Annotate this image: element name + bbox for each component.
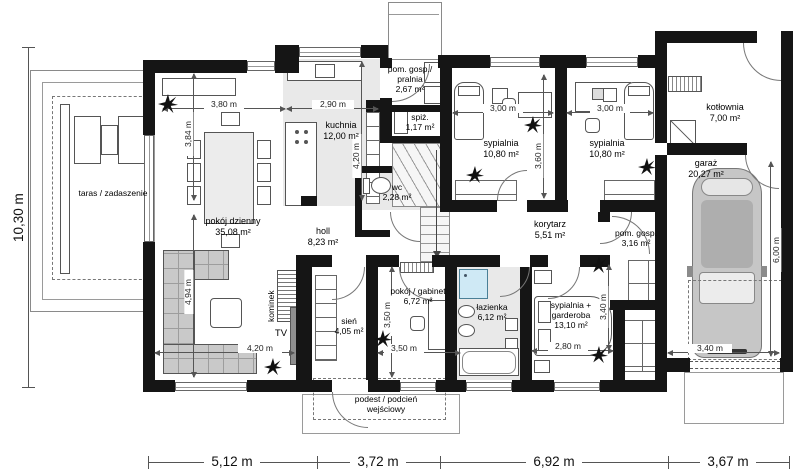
room-label-bathroom: łazienka6,12 m² [464, 302, 520, 322]
terrace-chair [118, 116, 145, 164]
toilet-tank [363, 178, 370, 194]
window [175, 382, 247, 391]
garage-door [690, 368, 780, 369]
desk [518, 92, 552, 118]
wall [780, 358, 793, 372]
wall [457, 255, 500, 267]
dim-tick [148, 456, 149, 469]
bathtub-inner [462, 351, 516, 374]
wall [781, 31, 793, 372]
wall [530, 255, 548, 267]
wall [667, 143, 747, 155]
chair [257, 163, 271, 182]
plant-icon [264, 358, 282, 376]
coffee-table [210, 298, 242, 328]
kitchen-sink [315, 64, 335, 78]
wall [312, 380, 332, 392]
stairs-direction-line [436, 150, 437, 253]
room-label-corridor: korytarz5,51 m² [520, 219, 580, 240]
car-rear-window [701, 178, 753, 196]
wall [512, 380, 554, 392]
wall [275, 45, 299, 73]
wall [452, 200, 497, 212]
wall [445, 267, 457, 380]
wall [613, 310, 625, 380]
window [466, 382, 512, 391]
dim-label: 3,60 m [534, 134, 543, 178]
room-label-wc: wc2,28 m² [374, 182, 420, 202]
wall [143, 60, 247, 73]
room-label-office: pokój / gabinet6,72 m² [388, 286, 448, 306]
wall [555, 67, 567, 200]
floor-plan: 3,80 m 2,90 m 3,00 m 3,00 m 4,20 m 3,50 … [0, 0, 802, 474]
dim-label: 3,84 m [184, 112, 193, 156]
dim-tick [440, 456, 441, 469]
washbasin [458, 324, 475, 337]
wall [388, 136, 442, 143]
window [586, 57, 638, 67]
room-label-utility: pom. gosp.3,16 m² [608, 228, 664, 248]
room-label-porch: podest / podcień wejściowy [342, 394, 430, 414]
room-label-kitchen: kuchnia12,00 m² [316, 120, 366, 141]
cooktop-icon [295, 130, 299, 134]
terrace-table [101, 125, 118, 155]
wall [312, 255, 332, 267]
wall [388, 105, 440, 112]
stool [603, 88, 617, 102]
wall [655, 358, 667, 392]
wall [143, 380, 175, 392]
wall [143, 60, 155, 135]
dim-label: 6,00 m [772, 228, 781, 272]
overall-dim-label: 6,92 m [526, 454, 582, 469]
chair [221, 112, 240, 126]
dim-tick [22, 387, 35, 388]
plant-icon [374, 330, 392, 348]
window [400, 382, 436, 391]
dim-label: 4,20 m [238, 344, 282, 353]
laundry-bumpout [388, 2, 442, 60]
window [299, 47, 361, 57]
window [490, 57, 540, 67]
room-label-terrace: taras / zadaszenie [72, 188, 154, 198]
overall-dim-label: 3,72 m [350, 454, 406, 469]
room-label-bedroom2: sypialnia10,80 m² [578, 138, 636, 159]
terrace-bench [60, 104, 70, 274]
room-label-living: pokój dzienny35,08 m² [197, 216, 269, 237]
overall-dim-label: 10,30 m [11, 188, 26, 248]
desk-chair [410, 316, 425, 331]
cabinet [604, 180, 655, 201]
wall [655, 31, 757, 43]
dim-tick [22, 47, 35, 48]
pillow [628, 86, 650, 96]
plant-icon [590, 256, 608, 274]
wall [368, 380, 400, 392]
chair [257, 186, 271, 205]
door-arc-vestibule [332, 267, 365, 300]
room-label-hall: holl8,23 m² [300, 226, 346, 247]
room-label-bedroom1: sypialnia10,80 m² [472, 138, 530, 159]
dim-label: 2,90 m [312, 100, 354, 109]
overall-dim-label: 3,67 m [700, 454, 756, 469]
wall [527, 200, 568, 212]
laundry-bumpout-line [389, 14, 439, 15]
dim-label: 4,94 m [184, 270, 193, 314]
door-arc-bedroom3 [548, 267, 580, 299]
wall [361, 45, 388, 58]
island-end-panel [301, 196, 317, 206]
chair [257, 140, 271, 159]
wall [440, 55, 452, 212]
dining-table [204, 132, 254, 224]
shower-drain-icon [464, 274, 467, 277]
room-label-pantry: spiż.1,17 m² [398, 112, 442, 132]
car-mirror [761, 266, 767, 277]
window [554, 382, 600, 391]
car-roof [701, 200, 753, 268]
dim-tick [668, 456, 669, 469]
garage-apron [684, 372, 784, 424]
plant-icon [466, 166, 484, 184]
dim-tick [789, 456, 790, 469]
terrace-chair [74, 116, 101, 164]
wall [355, 230, 390, 237]
dim-label: 3,80 m [204, 100, 244, 109]
car-mirror [687, 266, 693, 277]
wall [655, 155, 667, 358]
wall [655, 43, 667, 143]
dim-label: 3,40 m [688, 344, 732, 353]
room-label-garage: garaż20,27 m² [676, 158, 736, 179]
wall [143, 242, 155, 392]
door-arc-boiler-exterior [743, 43, 781, 81]
garage-door [690, 361, 780, 362]
room-label-vestibule: sień4,05 m² [326, 316, 372, 336]
room-label-laundry: pom. gosp./ pralnia2,67 m² [384, 64, 436, 94]
overall-dim-label: 5,12 m [204, 454, 260, 469]
wall [432, 255, 457, 267]
kitchen-island [285, 122, 317, 206]
plant-icon [158, 94, 178, 114]
room-label-boiler: kotłownia7,00 m² [694, 102, 756, 123]
door-arc-bedroom1 [497, 170, 527, 200]
dim-label: 3,00 m [590, 104, 630, 113]
chair [187, 163, 201, 182]
pillow [458, 86, 480, 96]
room-label-bedroom3: sypialnia + garderoba13,10 m² [538, 300, 604, 330]
nightstand [534, 360, 550, 373]
window [247, 61, 275, 71]
plant-icon [590, 346, 608, 364]
plant-icon [638, 158, 656, 176]
shower [459, 269, 488, 299]
door-arc-wc [390, 212, 420, 242]
overall-dim-line-left [28, 47, 29, 387]
dim-label: 2,80 m [548, 342, 588, 351]
desk-chair [585, 118, 600, 133]
boiler-unit [668, 76, 702, 92]
plant-icon [524, 116, 542, 134]
room-label-fireplace: kominek [266, 282, 276, 330]
dim-tick [317, 456, 318, 469]
wall [436, 380, 466, 392]
dim-label: 3,00 m [483, 104, 523, 113]
room-label-tv: TV [268, 328, 294, 339]
wall [296, 255, 312, 392]
